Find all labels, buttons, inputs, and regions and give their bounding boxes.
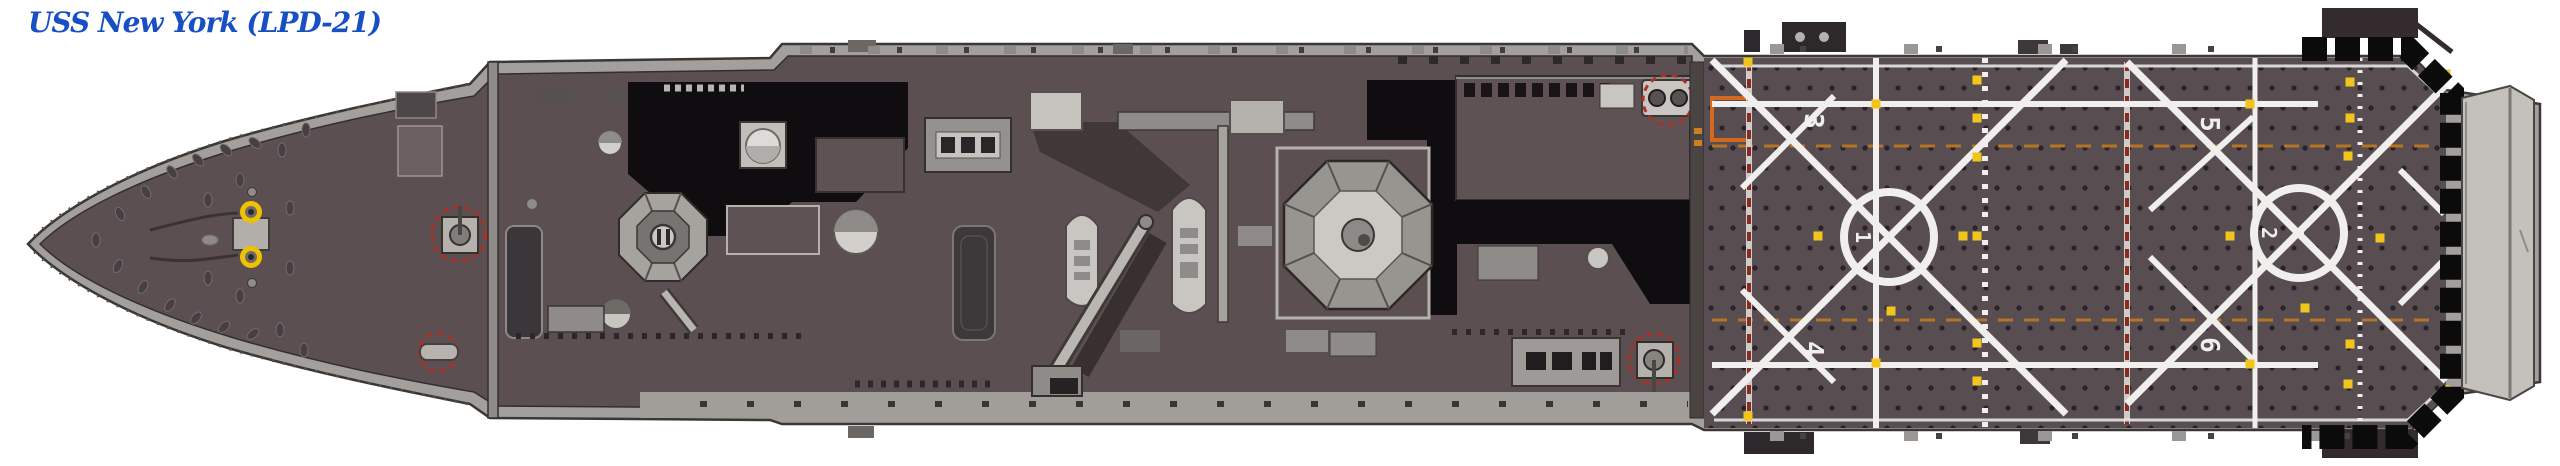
- aft-deck-box-2: [1478, 246, 1538, 280]
- deck-hatch: [953, 226, 995, 340]
- deck-box-3: [1120, 330, 1160, 352]
- boat-bay-divider: [1218, 126, 1228, 322]
- deck-box: [1238, 226, 1272, 246]
- vertical-trunk: [506, 226, 542, 338]
- rhib-boat-1: [1066, 215, 1098, 306]
- aft-deck-box: [1286, 330, 1328, 352]
- deck-locker-2: [604, 90, 626, 102]
- forward-funnel: [925, 118, 1011, 172]
- ship-top-view-svg: 1 2 3 4 5 6: [0, 0, 2560, 466]
- deck-box-2: [1330, 332, 1376, 356]
- deck-locker: [536, 88, 572, 104]
- ship-diagram: USS New York (LPD-21): [0, 0, 2560, 466]
- deckhouse-block: [727, 206, 819, 254]
- deck-cabinet: [548, 306, 604, 332]
- landing-spot-2-label: 2: [2257, 227, 2281, 239]
- forecastle-locker: [396, 92, 436, 118]
- flight-deck: 1 2 3 4 5 6: [1704, 49, 2451, 436]
- line-5-label: 5: [2194, 116, 2224, 132]
- hawse-ring-port: [243, 204, 260, 221]
- landing-spot-1-label: 1: [1851, 231, 1875, 243]
- orange-tick-2: [1694, 140, 1702, 146]
- rhib-boat-2: [1172, 198, 1206, 313]
- orange-tick-1: [1694, 128, 1702, 134]
- aft-locker: [1600, 84, 1634, 108]
- fire-control-radar: [740, 122, 786, 168]
- hawse-ring-starboard: [243, 249, 260, 266]
- aft-small-dome: [1587, 247, 1609, 269]
- flight-deck-forward-wall: [1690, 62, 1704, 418]
- forecastle-structure: [398, 126, 442, 176]
- line-6-label: 6: [2194, 337, 2224, 353]
- stern-gate: [2462, 86, 2534, 400]
- superstructure-front-wall: [488, 62, 498, 418]
- bridge-roof: [816, 138, 904, 192]
- signal-deck-slab: [1030, 92, 1082, 130]
- satcom-dome: [834, 210, 878, 254]
- line-3-label: 3: [1798, 113, 1828, 129]
- aft-window-block: [1512, 338, 1620, 386]
- aft-bridge-dome: [601, 299, 631, 329]
- deck-fitting-dot: [527, 199, 537, 209]
- boat-deck-slab: [1230, 100, 1284, 134]
- aft-roof-shadow: [1456, 200, 1690, 244]
- line-4-label: 4: [1798, 341, 1828, 357]
- forward-mast-octagon: [619, 193, 707, 281]
- aft-mast-octagon: [1284, 161, 1432, 309]
